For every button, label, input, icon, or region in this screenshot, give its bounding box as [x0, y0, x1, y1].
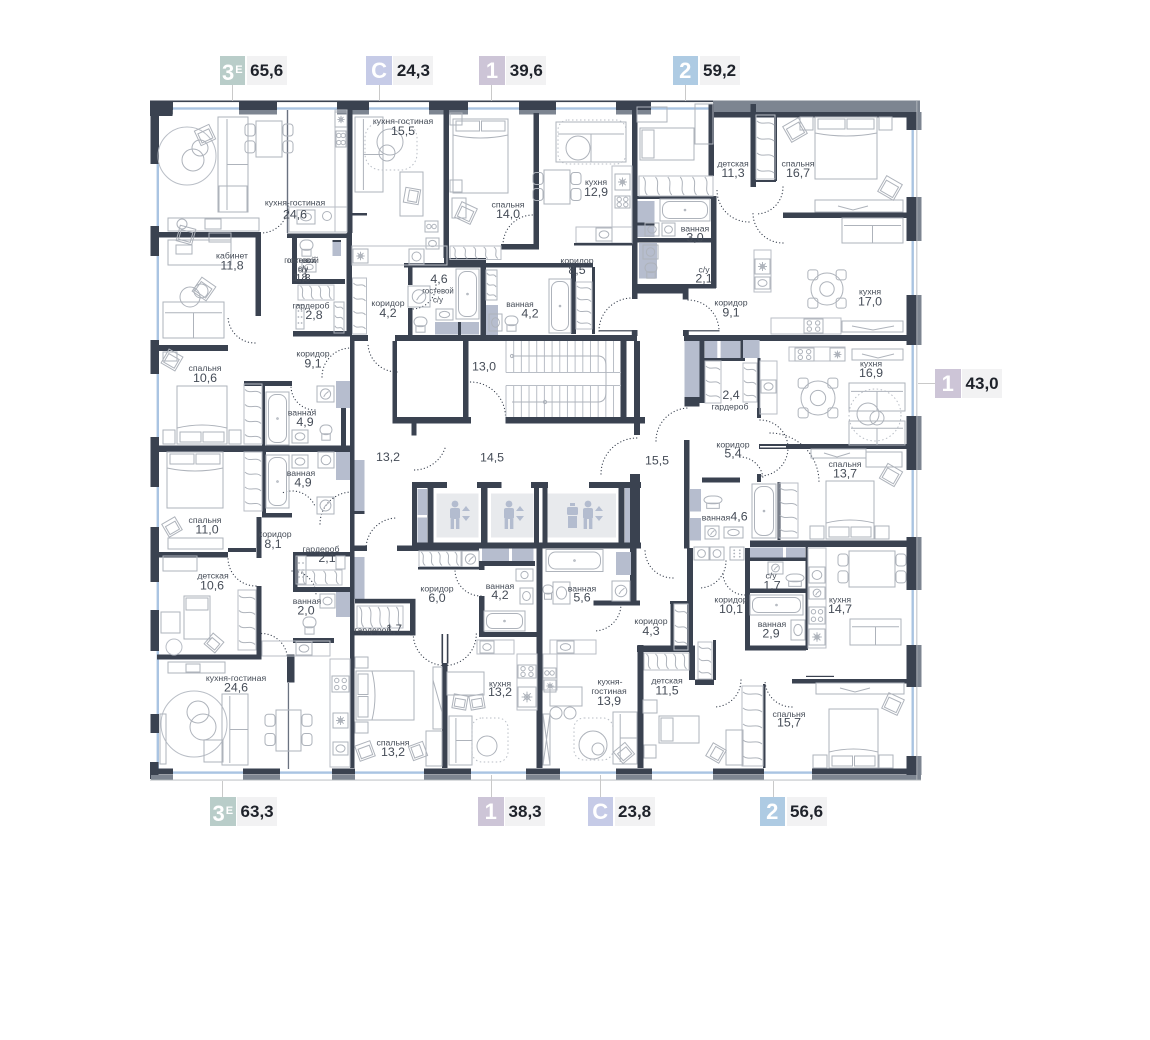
svg-text:2,1: 2,1: [318, 551, 335, 565]
svg-text:15,5: 15,5: [645, 454, 669, 468]
svg-text:ванная: ванная: [702, 513, 731, 523]
svg-text:9,1: 9,1: [722, 306, 739, 320]
svg-text:11,8: 11,8: [220, 259, 243, 273]
svg-text:13,0: 13,0: [472, 360, 496, 374]
svg-text:14,0: 14,0: [496, 207, 520, 221]
svg-text:9,1: 9,1: [304, 357, 321, 371]
svg-text:гардероб: гардероб: [712, 402, 749, 412]
svg-text:13,2: 13,2: [488, 685, 512, 699]
svg-text:4,2: 4,2: [521, 307, 538, 321]
svg-text:3,0: 3,0: [686, 231, 703, 245]
svg-text:4,3: 4,3: [642, 624, 659, 638]
svg-text:12,9: 12,9: [584, 185, 608, 199]
svg-text:10,6: 10,6: [200, 579, 224, 593]
svg-text:13,9: 13,9: [597, 694, 621, 708]
svg-text:8,1: 8,1: [264, 537, 281, 551]
svg-text:кухня-: кухня-: [598, 677, 623, 687]
svg-text:13,2: 13,2: [376, 450, 400, 464]
svg-text:13,7: 13,7: [833, 467, 857, 481]
svg-text:4,2: 4,2: [379, 306, 396, 320]
svg-text:16,7: 16,7: [786, 166, 810, 180]
svg-text:15,5: 15,5: [391, 124, 415, 138]
svg-text:8,5: 8,5: [568, 263, 585, 277]
svg-text:с/у: с/у: [433, 296, 443, 305]
svg-text:17,0: 17,0: [858, 295, 882, 309]
svg-text:4,6: 4,6: [430, 272, 447, 286]
svg-text:16,9: 16,9: [859, 366, 883, 380]
svg-text:4,9: 4,9: [294, 476, 311, 490]
svg-text:1,7: 1,7: [763, 579, 780, 593]
svg-text:6,0: 6,0: [428, 591, 445, 605]
svg-text:14,5: 14,5: [480, 451, 504, 465]
svg-text:14,7: 14,7: [828, 602, 852, 616]
svg-text:гостевой: гостевой: [422, 287, 453, 296]
svg-text:11,0: 11,0: [195, 523, 218, 537]
svg-text:1,7: 1,7: [386, 624, 402, 636]
svg-text:кухня-гостиная: кухня-гостиная: [265, 198, 326, 208]
svg-text:4,9: 4,9: [296, 415, 313, 429]
svg-text:10,6: 10,6: [193, 371, 217, 385]
svg-text:4,2: 4,2: [491, 588, 508, 602]
svg-text:2,8: 2,8: [305, 308, 322, 322]
svg-text:4,6: 4,6: [730, 510, 747, 524]
svg-text:2,0: 2,0: [297, 604, 314, 618]
svg-text:10,1: 10,1: [719, 602, 743, 616]
svg-text:11,3: 11,3: [721, 166, 744, 180]
svg-text:2,9: 2,9: [762, 627, 779, 641]
svg-text:11,5: 11,5: [655, 684, 678, 698]
svg-text:2,1: 2,1: [695, 272, 712, 286]
svg-text:5,4: 5,4: [724, 447, 741, 461]
svg-text:15,7: 15,7: [777, 716, 801, 730]
svg-text:24,6: 24,6: [224, 681, 248, 695]
svg-text:2,4: 2,4: [722, 388, 739, 402]
svg-text:13,2: 13,2: [381, 745, 405, 759]
svg-text:24,6: 24,6: [283, 208, 307, 222]
svg-text:5,6: 5,6: [573, 591, 590, 605]
svg-text:1,8: 1,8: [292, 272, 307, 284]
